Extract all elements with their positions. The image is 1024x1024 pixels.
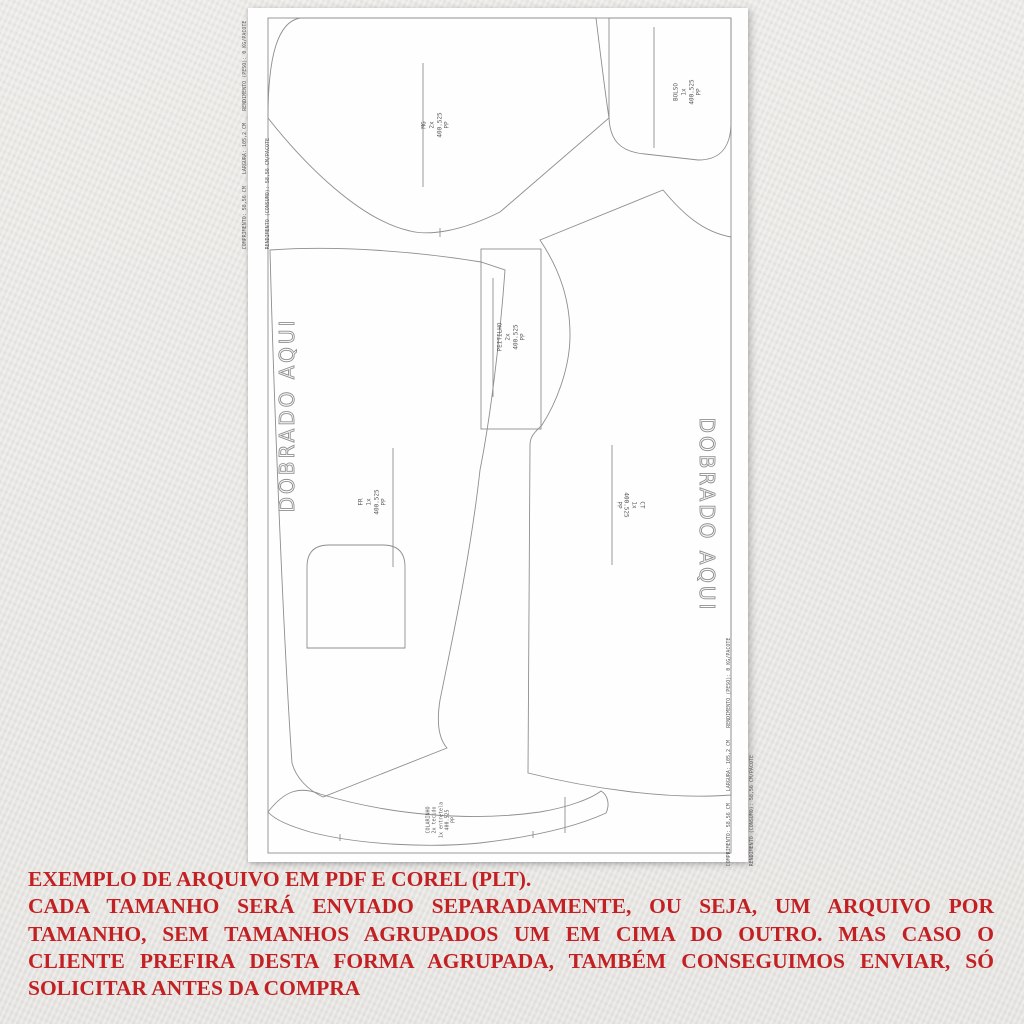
fold-here-label-right: DOBRADO AQUI	[695, 418, 719, 613]
piece-name: MG	[420, 112, 428, 137]
marker-stats-line: COMPRIMENTO: 58,56 CM LARGURA: 105,2 CM …	[726, 638, 734, 867]
caption-line: TAMANHO, SEM TAMANHOS AGRUPADOS UM EM CI…	[28, 921, 994, 948]
piece-ct-label: CT 1x 400.525 PP	[614, 492, 645, 517]
piece-qty: 1x	[365, 489, 373, 514]
piece-size: PP	[614, 492, 622, 517]
marker-stats-right: COMPRIMENTO: 58,56 CM LARGURA: 105,2 CM …	[711, 638, 771, 867]
piece-qty: 2x	[504, 323, 512, 352]
caption-line: CADA TAMANHO SERÁ ENVIADO SEPARADAMENTE,…	[28, 893, 994, 920]
pattern-sheet: COMPRIMENTO: 58,56 CM LARGURA: 105,2 CM …	[248, 8, 748, 862]
piece-model: 400.525	[688, 79, 696, 104]
piece-bolso-label: BOLSO 1x 400.525 PP	[672, 79, 703, 104]
piece-peitilho-label: PEITILHO 2x 400.525 PP	[496, 323, 527, 352]
sheet-border	[268, 18, 731, 853]
piece-name: CT	[638, 492, 646, 517]
marker-stats-left: COMPRIMENTO: 58,56 CM LARGURA: 105,2 CM …	[227, 21, 287, 250]
piece-bolso-outline	[609, 18, 731, 160]
pocket-placement-outline	[307, 545, 405, 648]
piece-colarinho-label: COLARINHO 2x tecido 1x entretela 400.525…	[425, 802, 456, 838]
piece-qty: 2x	[428, 112, 436, 137]
piece-size: PP	[450, 802, 456, 838]
piece-fr-outline	[270, 248, 505, 797]
caption-line: EXEMPLO DE ARQUIVO EM PDF E COREL (PLT).	[28, 866, 994, 893]
piece-model: 400.525	[373, 489, 381, 514]
piece-qty-fabric: 2x tecido	[432, 802, 438, 838]
piece-size: PP	[520, 323, 528, 352]
piece-model: 400.525	[436, 112, 444, 137]
piece-model: 400.525	[622, 492, 630, 517]
piece-qty: 1x	[630, 492, 638, 517]
piece-fr-label: FR 1x 400.525 PP	[357, 489, 388, 514]
piece-name: FR	[357, 489, 365, 514]
piece-qty: 1x	[680, 79, 688, 104]
marker-stats-line: RENDIMENTO (CONSUMO): 58,56 CM/PACOTE	[749, 638, 757, 867]
caption-line: CLIENTE PREFIRA DESTA FORMA AGRUPADA, TA…	[28, 948, 994, 975]
pattern-outlines	[248, 8, 748, 862]
piece-name: PEITILHO	[496, 323, 504, 352]
piece-mg-label: MG 2x 400.525 PP	[420, 112, 451, 137]
piece-name: BOLSO	[672, 79, 680, 104]
fold-here-label-left: DOBRADO AQUI	[275, 318, 299, 513]
caption: EXEMPLO DE ARQUIVO EM PDF E COREL (PLT).…	[28, 866, 994, 1002]
piece-qty-interfacing: 1x entretela	[438, 802, 444, 838]
marker-stats-line: RENDIMENTO (CONSUMO): 58,56 CM/PACOTE	[265, 21, 273, 250]
piece-size: PP	[381, 489, 389, 514]
marker-stats-line: COMPRIMENTO: 58,56 CM LARGURA: 105,2 CM …	[242, 21, 250, 250]
piece-model: 400.525	[512, 323, 520, 352]
product-image: { "sheet": { "edge_info": { "line1": "CO…	[0, 0, 1024, 1024]
piece-size: PP	[444, 112, 452, 137]
caption-line: SOLICITAR ANTES DA COMPRA	[28, 975, 994, 1002]
piece-size: PP	[696, 79, 704, 104]
